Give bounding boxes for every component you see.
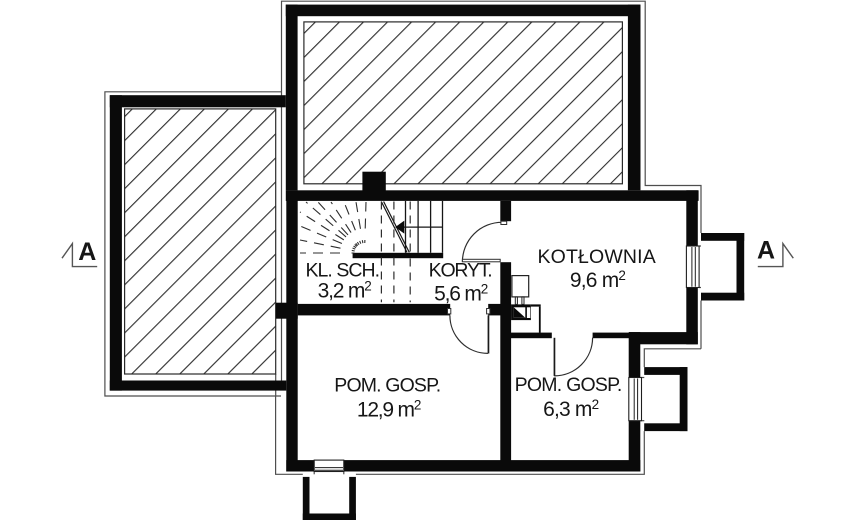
svg-text:A: A xyxy=(757,237,775,265)
svg-text:POM. GOSP.: POM. GOSP. xyxy=(334,374,440,396)
svg-text:12,9 m2: 12,9 m2 xyxy=(357,398,421,422)
svg-text:5,6 m2: 5,6 m2 xyxy=(434,282,488,306)
svg-text:9,6 m2: 9,6 m2 xyxy=(570,268,626,292)
svg-text:A: A xyxy=(78,238,96,266)
svg-text:3,2 m2: 3,2 m2 xyxy=(318,279,372,303)
svg-text:KORYT.: KORYT. xyxy=(429,260,492,282)
svg-text:6,3 m2: 6,3 m2 xyxy=(543,397,599,421)
svg-text:POM. GOSP.: POM. GOSP. xyxy=(515,374,622,396)
svg-text:KOTŁOWNIA: KOTŁOWNIA xyxy=(538,246,656,268)
